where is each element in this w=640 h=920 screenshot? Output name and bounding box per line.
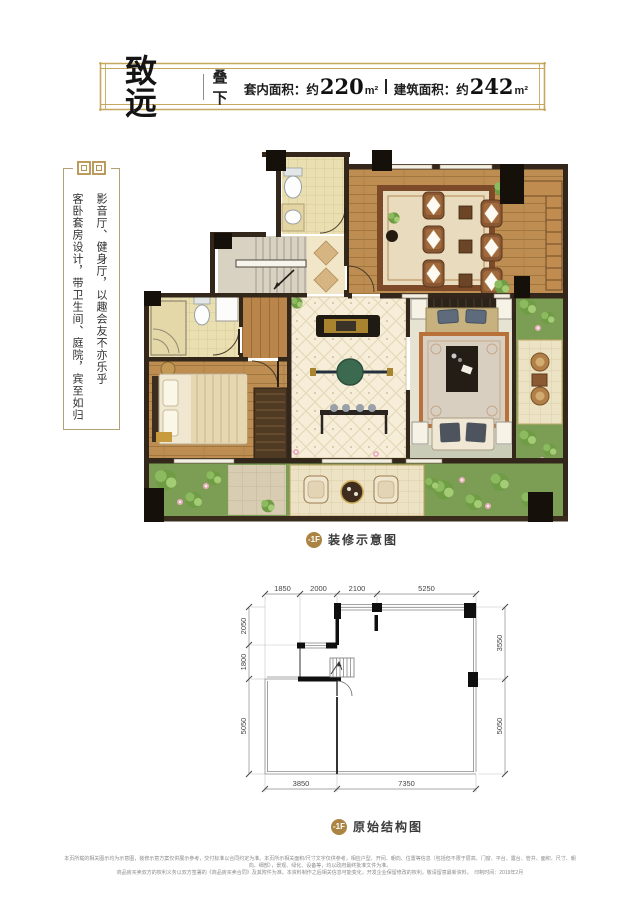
wicker-chair xyxy=(531,387,549,405)
guest-bedroom-furniture xyxy=(411,295,512,450)
wicker-chair xyxy=(531,353,549,371)
toilet xyxy=(195,305,210,325)
structure-door-arc xyxy=(337,681,352,696)
inner-area-value: 220 xyxy=(320,74,364,99)
toilet xyxy=(285,176,302,198)
gold-throw xyxy=(156,432,172,442)
decorated-plan-figure xyxy=(144,150,568,530)
structure-stairs xyxy=(330,658,354,677)
dim-top-2: 2000 xyxy=(310,584,327,593)
toilet-tank xyxy=(284,168,302,176)
terrace-pavers xyxy=(228,465,286,515)
disclaimer-line-2: 商品房买卖双方的权利义务以双方签署的《商品房买卖合同》及其附件为准。本资料制作之… xyxy=(60,870,580,877)
cushion xyxy=(465,422,486,442)
terrace-chair xyxy=(374,476,398,503)
inner-area-unit: m² xyxy=(365,85,378,97)
structure-plan-caption: -1F 原始结构图 xyxy=(331,818,423,835)
terrace-chair xyxy=(304,476,328,503)
build-area-label: 建筑面积：约 xyxy=(394,79,469,98)
side-note-line-2: 客卧套房设计，带卫生间、庭院，宾至如归 xyxy=(65,193,89,421)
dim-top-3: 2100 xyxy=(349,584,366,593)
inner-area-label: 套内面积：约 xyxy=(244,79,319,98)
bath-cabinet xyxy=(216,297,238,321)
theater-side-tables xyxy=(459,206,472,287)
structure-walls xyxy=(265,603,478,774)
page-title: 致远 xyxy=(125,55,201,119)
side-table xyxy=(412,422,428,444)
decorated-plan-label: 装修示意图 xyxy=(328,531,398,548)
decorated-plan-caption: -1F 装修示意图 xyxy=(306,531,398,548)
sink xyxy=(285,210,301,224)
theater-urn xyxy=(386,230,398,242)
dim-top-4: 5250 xyxy=(418,584,435,593)
dim-bottom-2: 7350 xyxy=(398,779,415,788)
exercise-ball xyxy=(337,359,363,385)
dim-top-1: 1850 xyxy=(274,584,291,593)
side-note-panel: 影音厅、健身厅，以趣会友不亦乐乎 客卧套房设计，带卫生间、庭院，宾至如归 xyxy=(63,168,120,430)
dim-left-3: 5050 xyxy=(239,718,248,735)
dim-right-1: 3550 xyxy=(495,635,504,652)
dim-right-2: 5050 xyxy=(495,718,504,735)
title-box: 致远 叠下 套内面积：约 220 m² 建筑面积：约 242 m² xyxy=(99,62,546,111)
side-note-line-1: 影音厅、健身厅，以趣会友不亦乐乎 xyxy=(89,193,113,421)
dim-left-1: 2050 xyxy=(239,618,248,635)
disclaimer-line-1: 本页所载的相关图示均为示意图，装修示意方案仅供展示参考，交付标准以合同约定为准。… xyxy=(60,856,580,870)
hall-strip-floor xyxy=(242,297,287,358)
knot-ornament-icon xyxy=(73,158,111,183)
side-table xyxy=(496,422,512,444)
guest-bed xyxy=(426,308,498,334)
wardrobe xyxy=(254,388,287,460)
structure-plan-label: 原始结构图 xyxy=(353,818,423,835)
side-note-text: 影音厅、健身厅，以趣会友不亦乐乎 客卧套房设计，带卫生间、庭院，宾至如归 xyxy=(64,193,119,421)
build-area-unit: m² xyxy=(515,85,528,97)
floor-badge: -1F xyxy=(331,819,347,835)
terrace-table xyxy=(341,481,363,503)
blanket xyxy=(191,375,247,443)
pillow xyxy=(466,309,487,323)
floor-badge: -1F xyxy=(306,532,322,548)
area-separator xyxy=(385,79,387,94)
title-subtitle: 叠下 xyxy=(213,66,244,108)
structure-plan-figure: 1850 2000 2100 5250 2050 1800 5050 3550 … xyxy=(213,578,518,806)
stair-handrail xyxy=(236,260,306,267)
build-area-value: 242 xyxy=(470,74,514,99)
dim-bottom-1: 3850 xyxy=(293,779,310,788)
pillow xyxy=(163,380,178,406)
garden-table xyxy=(532,374,547,386)
area-info: 套内面积：约 220 m² 建筑面积：约 242 m² xyxy=(244,74,528,99)
disclaimer: 本页所载的相关图示均为示意图，装修示意方案仅供展示参考，交付标准以合同约定为准。… xyxy=(60,856,580,877)
pillow xyxy=(438,309,459,323)
title-divider xyxy=(203,74,204,100)
nightstand xyxy=(411,299,427,319)
cushion xyxy=(440,422,461,442)
shower xyxy=(151,301,186,355)
dim-left-2: 1800 xyxy=(239,654,248,671)
